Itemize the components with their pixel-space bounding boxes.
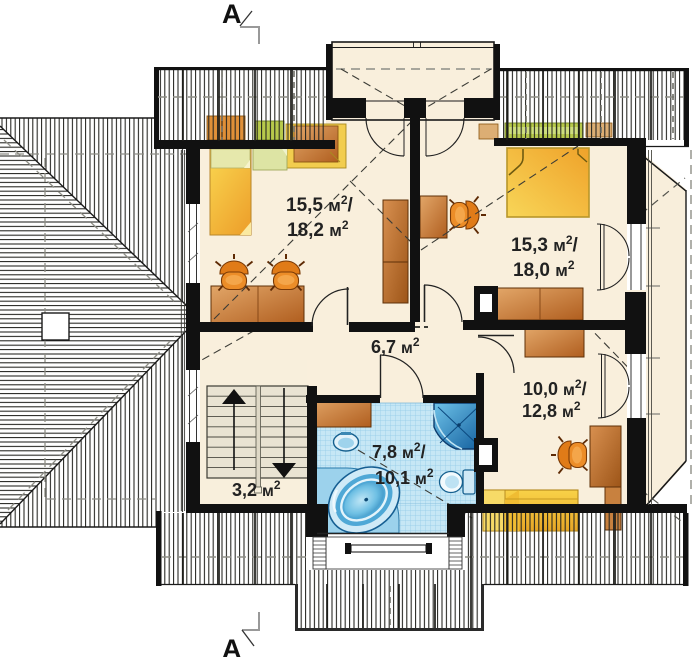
svg-text:18,0 м2: 18,0 м2 (513, 258, 575, 281)
svg-text:18,2 м2: 18,2 м2 (287, 218, 349, 241)
svg-text:A: A (222, 0, 242, 29)
svg-text:3,2 м2: 3,2 м2 (232, 478, 281, 500)
svg-text:6,7 м2: 6,7 м2 (371, 335, 420, 357)
svg-text:A: A (222, 634, 242, 657)
